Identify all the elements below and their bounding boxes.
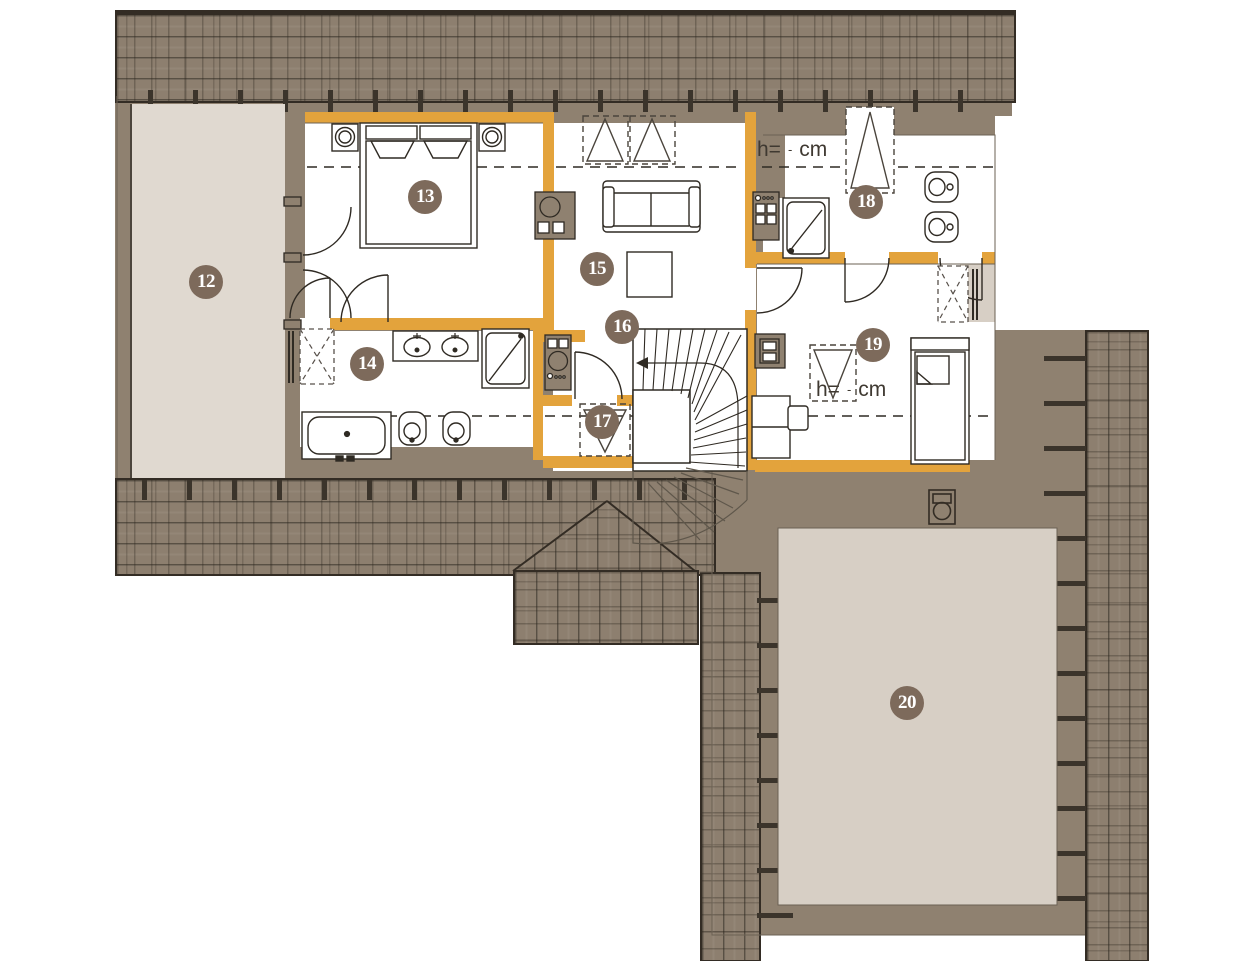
room-badge-16: 16 [605,310,639,344]
floor-plan-canvas: 12 13 14 15 16 17 18 19 20 h= - cm h= - … [0,0,1257,961]
room-number-19: 19 [864,334,882,356]
room-number-14: 14 [358,353,376,375]
height-note-room18: h= - cm [757,138,827,162]
vanity-double-sink [393,331,478,361]
room-badge-15: 15 [580,252,614,286]
coffee-table [627,252,672,297]
staircase [633,329,747,544]
desk-and-chair [752,396,808,458]
height-note-room19: h= - cm [816,378,886,402]
height-note-prefix: h= [816,378,840,402]
shower-room18 [783,198,829,258]
plan-linework [0,0,1257,961]
room-number-16: 16 [613,316,631,338]
height-note-placeholder: - [788,142,792,157]
room-badge-13: 13 [408,180,442,214]
room-number-15: 15 [588,258,606,280]
room-badge-14: 14 [350,347,384,381]
bed-single [911,338,969,464]
terrace-door-jambs [284,197,301,329]
room-number-20: 20 [898,692,916,714]
room-number-18: 18 [857,191,875,213]
height-note-unit: cm [858,378,886,402]
room-number-13: 13 [416,186,434,208]
room-number-12: 12 [197,271,215,293]
room-badge-12: 12 [189,265,223,299]
room-badge-20: 20 [890,686,924,720]
dormer-ridge-lines [513,501,695,571]
room-badge-18: 18 [849,185,883,219]
height-note-prefix: h= [757,138,781,162]
bathtub [302,412,391,461]
shower-room14 [482,329,529,388]
room-number-17: 17 [593,411,611,433]
sofa [603,181,700,232]
room-badge-17: 17 [585,405,619,439]
toilet-and-bidet-room14 [399,412,470,445]
height-note-placeholder: - [847,382,851,397]
toilets-room18 [925,172,958,242]
chimney [929,490,955,524]
room-badge-19: 19 [856,328,890,362]
height-note-unit: cm [799,138,827,162]
